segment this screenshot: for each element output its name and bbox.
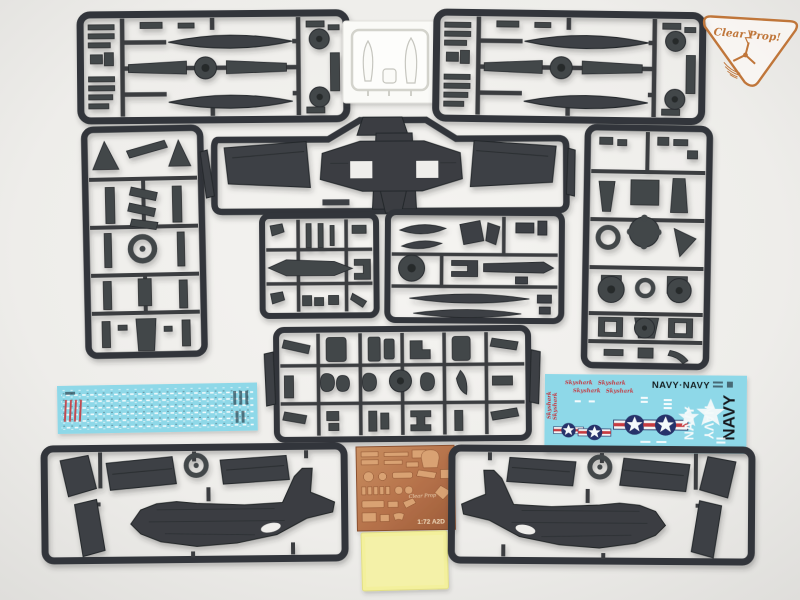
decal-navy-vertical-white: NAVY xyxy=(682,406,696,441)
decal-script-name-vertical: Skyshark xyxy=(553,392,559,420)
shovel-part xyxy=(320,373,334,391)
center-part xyxy=(138,279,152,306)
photo-etch-fret: Clear Prop 1:72 A2D xyxy=(356,445,455,531)
small-strip-part xyxy=(322,199,349,205)
door-part xyxy=(452,336,470,360)
windscreen-clear-part xyxy=(383,69,396,83)
prop-blade-part xyxy=(529,350,540,404)
clear-parts-sprue xyxy=(343,21,437,103)
decal-script-name: Skyshark xyxy=(565,380,593,386)
fin-part xyxy=(671,178,689,212)
oleo-part xyxy=(103,281,112,309)
blade-part xyxy=(484,262,554,273)
leg-part xyxy=(102,321,111,347)
etch-scale-label: 1:72 A2D xyxy=(417,518,445,525)
strut-part xyxy=(177,232,185,266)
sprue-cockpit-parts xyxy=(262,215,377,316)
kit-contents-photo: Clear Prop! xyxy=(0,0,800,600)
mask-sheet xyxy=(361,531,448,591)
bracket-part xyxy=(516,223,534,233)
decal-navy-pair: NAVY·NAVY xyxy=(652,380,710,392)
strut-part xyxy=(104,233,112,267)
seat-part xyxy=(136,319,157,351)
gear-leg-part xyxy=(105,187,115,223)
outer-wing-panel-part xyxy=(470,140,556,186)
spear-part xyxy=(306,224,311,248)
decal-script-name: Skyshark xyxy=(573,388,601,394)
prop-blade-part xyxy=(264,352,275,406)
door-part xyxy=(326,337,346,361)
shovel-part xyxy=(336,375,349,391)
spear-part xyxy=(318,224,323,248)
outer-wing-panel-part xyxy=(224,141,310,187)
oleo-part xyxy=(179,280,188,308)
leg-part xyxy=(182,320,191,346)
fan-part xyxy=(460,221,484,245)
canopy-clear-part xyxy=(363,41,372,81)
gear-leg-part xyxy=(172,186,182,222)
decal-script-name: Skyshark xyxy=(606,389,634,395)
plate-part xyxy=(631,180,659,205)
decal-script-name: Skyshark xyxy=(598,380,626,386)
cross-part xyxy=(352,225,366,233)
aileron-strip-part xyxy=(566,148,575,196)
decal-navy-vertical-white: NAVY xyxy=(701,405,715,440)
decal-navy-vertical-black: NAVY xyxy=(719,394,738,441)
door-part xyxy=(368,337,380,361)
stencil-decal-sheet xyxy=(57,383,258,434)
markings-decal-sheet: Skyshark Skyshark Skyshark Skyshark Skys… xyxy=(544,374,747,454)
